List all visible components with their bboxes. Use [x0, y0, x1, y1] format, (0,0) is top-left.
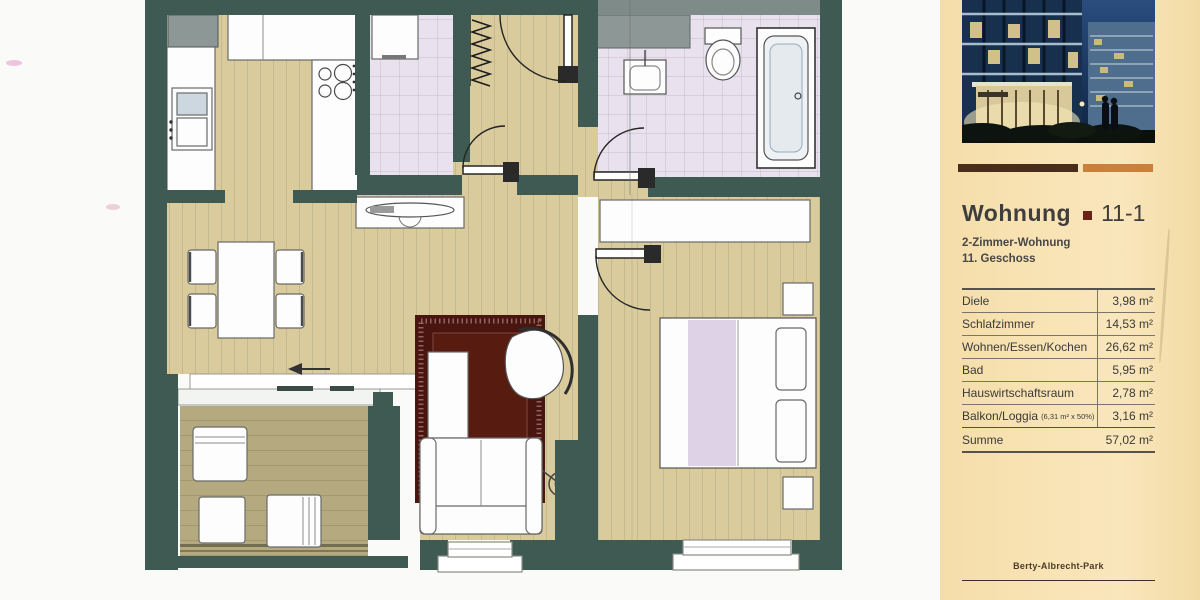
- shaft: [595, 15, 690, 48]
- divider-bar-dark: [958, 164, 1078, 172]
- kitchen-counter-column: [312, 60, 358, 192]
- room-label: Diele: [962, 290, 1098, 312]
- total-area: 57,02 m²: [1097, 433, 1155, 447]
- room-area: 26,62 m²: [1098, 340, 1155, 354]
- divider-bar-orange: [1083, 164, 1153, 172]
- duvet: [688, 320, 736, 466]
- pillow: [776, 400, 806, 462]
- room-label: Wohnen/Essen/Kochen: [962, 336, 1098, 358]
- toilet-icon: [705, 28, 741, 80]
- info-panel: Wohnung 11-1 2-Zimmer-Wohnung 11. Gescho…: [940, 0, 1200, 600]
- room-area: 5,95 m²: [1098, 363, 1155, 377]
- table-row: Hauswirtschaftsraum 2,78 m²: [962, 381, 1155, 404]
- kitchen-sink-basin: [177, 93, 207, 115]
- dining-table: [218, 242, 274, 338]
- washing-machine-icon: [372, 15, 418, 59]
- balcony: [180, 406, 368, 556]
- title-label: Wohnung: [962, 200, 1071, 227]
- total-label: Summe: [962, 428, 1097, 451]
- table-row-total: Summe 57,02 m²: [962, 427, 1155, 453]
- table-row: Diele 3,98 m²: [962, 288, 1155, 312]
- nightstand: [783, 477, 813, 509]
- shaft: [168, 15, 218, 47]
- chair: [188, 250, 216, 284]
- sideboard: [356, 197, 464, 228]
- chair: [188, 294, 216, 328]
- building-photo: [962, 0, 1155, 143]
- table-row: Schlafzimmer 14,53 m²: [962, 312, 1155, 335]
- chair: [276, 250, 304, 284]
- armchair: [505, 330, 563, 399]
- project-footer: Berty-Albrecht-Park: [962, 556, 1155, 581]
- room-label: Bad: [962, 359, 1098, 381]
- room-label: Schlafzimmer: [962, 313, 1098, 335]
- window-sill: [673, 554, 799, 570]
- balcony-folding-chair: [267, 495, 321, 547]
- coffee-table: [428, 352, 468, 438]
- room-area: 14,53 m²: [1098, 317, 1155, 331]
- balcony-side-table: [199, 497, 245, 543]
- apartment-title: Wohnung 11-1: [962, 200, 1145, 227]
- nightstand: [783, 283, 813, 315]
- apartment-floor: 11. Geschoss: [962, 253, 1036, 265]
- apartment-type: 2-Zimmer-Wohnung: [962, 237, 1070, 249]
- table-row: Balkon/Loggia(6,31 m² x 50%) 3,16 m²: [962, 404, 1155, 427]
- window-sill: [438, 556, 522, 572]
- unit-number: 11-1: [1101, 200, 1145, 227]
- balcony-note: (6,31 m² x 50%): [1041, 412, 1094, 421]
- balcony-lounge-chair: [193, 427, 247, 481]
- utility-room: [372, 15, 418, 59]
- table-row: Bad 5,95 m²: [962, 358, 1155, 381]
- room-area: 2,78 m²: [1098, 386, 1155, 400]
- kitchen-counter-top: [228, 13, 358, 60]
- bathtub-icon: [757, 28, 815, 168]
- paper-crease: [1158, 228, 1170, 363]
- bullet-square-icon: [1083, 211, 1092, 220]
- room-area: 3,98 m²: [1098, 294, 1155, 308]
- room-area: 3,16 m²: [1098, 409, 1155, 423]
- room-label: Balkon/Loggia(6,31 m² x 50%): [962, 405, 1098, 427]
- divider-bar: [958, 164, 1158, 172]
- pillow: [776, 328, 806, 390]
- sofa: [420, 438, 542, 534]
- area-table: Diele 3,98 m² Schlafzimmer 14,53 m² Wohn…: [962, 288, 1155, 453]
- table-row: Wohnen/Essen/Kochen 26,62 m²: [962, 335, 1155, 358]
- chair: [276, 294, 304, 328]
- project-name: Berty-Albrecht-Park: [1013, 561, 1104, 571]
- room-label: Hauswirtschaftsraum: [962, 382, 1098, 404]
